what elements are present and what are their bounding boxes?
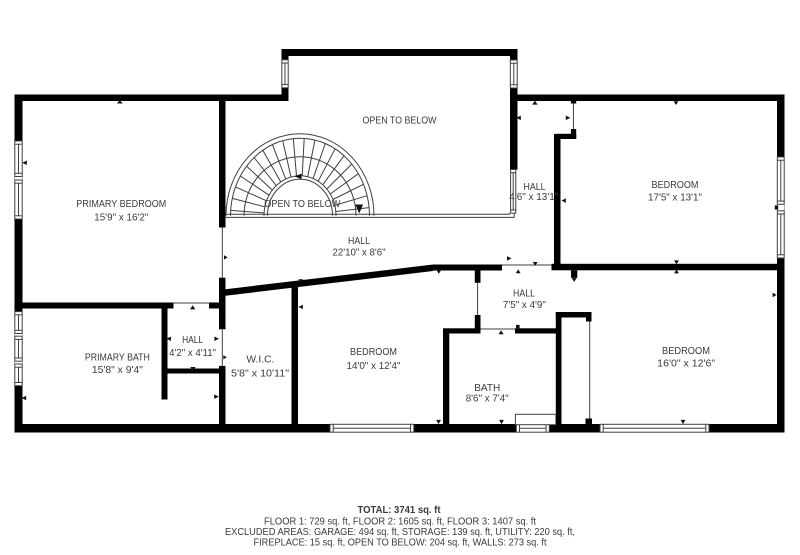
svg-text:TOTAL: 3741 sq. ft: TOTAL: 3741 sq. ft [358, 504, 441, 516]
svg-text:HALL: HALL [348, 235, 370, 247]
svg-text:OPEN TO BELOW: OPEN TO BELOW [363, 114, 437, 126]
svg-text:17'5" x 13'1": 17'5" x 13'1" [648, 191, 702, 203]
svg-text:HALL: HALL [182, 334, 203, 346]
svg-text:15'9" x 16'2": 15'9" x 16'2" [94, 211, 148, 223]
svg-text:15'8" x 9'4": 15'8" x 9'4" [92, 364, 143, 376]
svg-text:EXCLUDED AREAS: GARAGE: 494 sq: EXCLUDED AREAS: GARAGE: 494 sq. ft, STOR… [225, 527, 575, 538]
svg-text:4'6" x 13'1": 4'6" x 13'1" [509, 191, 558, 203]
svg-text:FIREPLACE: 15 sq. ft, OPEN TO: FIREPLACE: 15 sq. ft, OPEN TO BELOW: 204… [254, 537, 547, 548]
svg-text:4'2" x 4'11": 4'2" x 4'11" [169, 347, 216, 359]
svg-text:7'5" x 4'9": 7'5" x 4'9" [503, 299, 546, 311]
svg-text:BEDROOM: BEDROOM [652, 179, 699, 191]
svg-text:HALL: HALL [513, 287, 535, 299]
svg-text:BEDROOM: BEDROOM [662, 345, 710, 357]
svg-text:W.I.C.: W.I.C. [246, 353, 274, 365]
svg-text:OPEN TO BELOW: OPEN TO BELOW [264, 198, 340, 210]
svg-text:22'10" x 8'6": 22'10" x 8'6" [333, 247, 386, 259]
svg-text:FLOOR 1: 729 sq. ft, FLOOR 2:: FLOOR 1: 729 sq. ft, FLOOR 2: 1605 sq. f… [264, 516, 536, 527]
svg-text:PRIMARY BATH: PRIMARY BATH [85, 351, 150, 363]
svg-text:8'6" x 7'4": 8'6" x 7'4" [466, 393, 509, 405]
svg-text:14'0" x 12'4": 14'0" x 12'4" [347, 360, 401, 372]
svg-text:PRIMARY BEDROOM: PRIMARY BEDROOM [76, 198, 166, 210]
svg-text:BEDROOM: BEDROOM [350, 346, 397, 358]
svg-text:5'8" x 10'11": 5'8" x 10'11" [231, 367, 289, 379]
svg-text:16'0" x 12'6": 16'0" x 12'6" [657, 357, 715, 369]
